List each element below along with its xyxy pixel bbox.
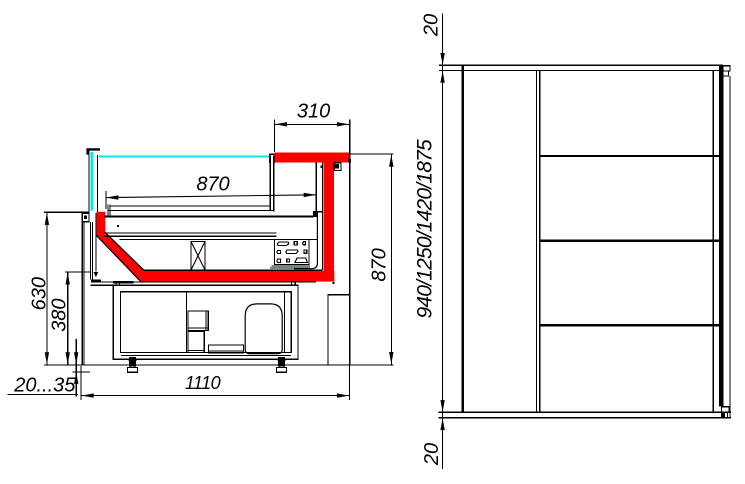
svg-text:380: 380 [48,299,70,332]
svg-text:870: 870 [369,248,391,281]
svg-text:1110: 1110 [185,373,221,393]
svg-text:20...35: 20...35 [13,374,76,396]
svg-text:20: 20 [421,443,443,466]
svg-text:870: 870 [196,174,229,196]
svg-text:630: 630 [29,277,51,310]
svg-text:20: 20 [421,14,443,37]
svg-text:310: 310 [297,101,330,123]
svg-text:940/1250/1420/1875: 940/1250/1420/1875 [413,139,436,318]
